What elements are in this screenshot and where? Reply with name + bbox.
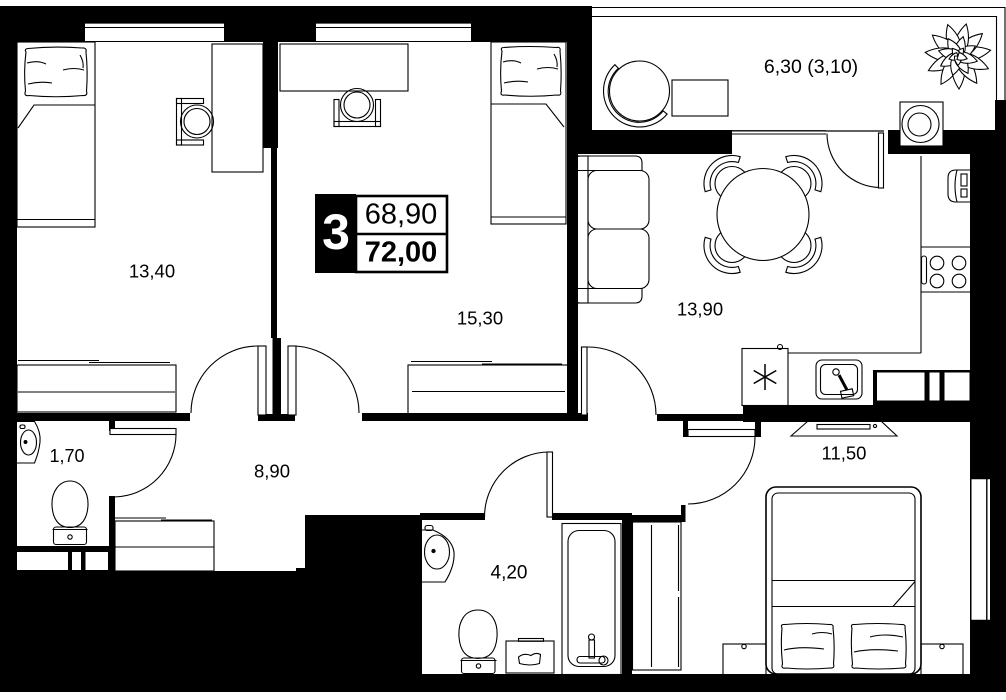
svg-text:15,30: 15,30 [457, 308, 503, 329]
svg-text:3: 3 [322, 204, 350, 260]
svg-text:68,90: 68,90 [365, 199, 438, 231]
svg-text:6,30 (3,10): 6,30 (3,10) [764, 56, 858, 78]
svg-text:4,20: 4,20 [491, 563, 528, 584]
svg-text:13,90: 13,90 [677, 299, 723, 320]
svg-text:13,40: 13,40 [129, 261, 175, 282]
svg-text:72,00: 72,00 [365, 237, 438, 269]
svg-text:1,70: 1,70 [49, 446, 84, 466]
svg-text:8,90: 8,90 [254, 461, 290, 482]
svg-text:11,50: 11,50 [822, 443, 867, 464]
